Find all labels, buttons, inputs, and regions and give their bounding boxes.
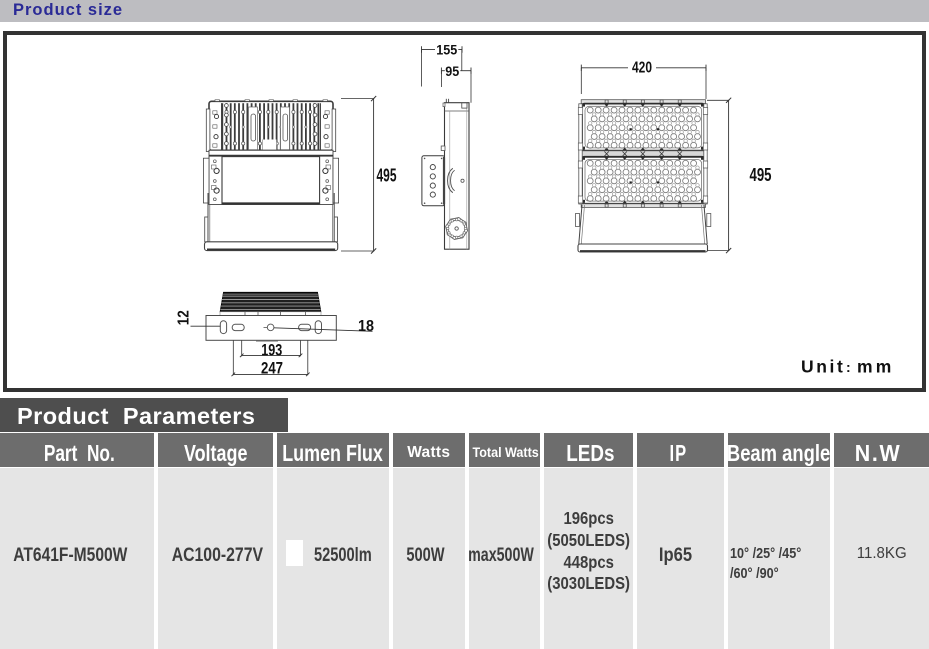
svg-text:495: 495 <box>377 166 397 186</box>
svg-text:18: 18 <box>358 318 374 335</box>
svg-text:495: 495 <box>750 165 772 185</box>
svg-text:Unit: Unit <box>801 357 845 377</box>
svg-text:155: 155 <box>436 43 457 58</box>
svg-text:420: 420 <box>632 59 652 76</box>
svg-text:12: 12 <box>176 310 193 325</box>
svg-text:95: 95 <box>445 64 459 79</box>
svg-text:193: 193 <box>261 341 282 360</box>
svg-text:mm: mm <box>857 357 895 377</box>
svg-text::: : <box>846 359 851 375</box>
svg-text:247: 247 <box>261 359 283 378</box>
